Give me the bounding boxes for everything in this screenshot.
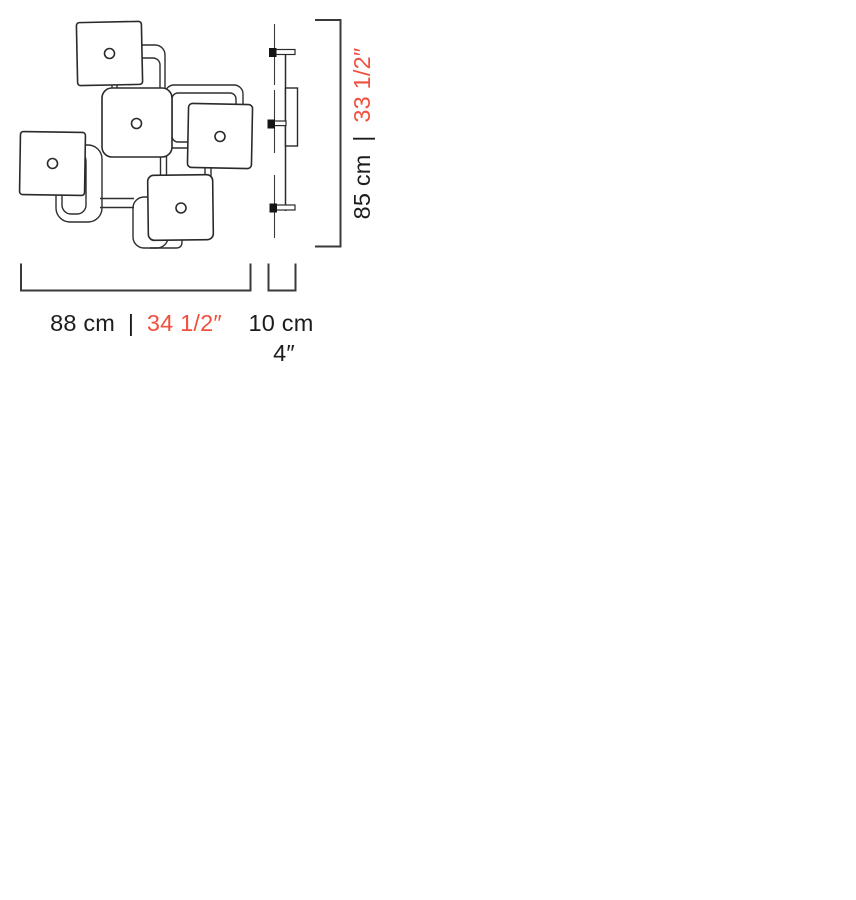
dimension-drawing-canvas: 88 cm | 34 1/2″ 10 cm 4″ 85 cm | 33 1/2″ [0, 0, 856, 900]
height-metric-value: 85 cm [349, 154, 375, 219]
dimension-drawing-page: 88 cm | 34 1/2″ 10 cm 4″ 85 cm | 33 1/2″ [0, 0, 856, 900]
shade-fixing-dot [47, 158, 57, 168]
side-view-drawing [268, 24, 298, 238]
width-dimension-bracket [21, 264, 251, 291]
wall-mount-bracket-top [269, 48, 295, 57]
depth-metric-label: 10 cm [249, 310, 314, 336]
width-metric-value: 88 cm [50, 310, 115, 336]
wall-mount-bracket-bottom [270, 204, 296, 213]
width-separator: | [128, 310, 134, 336]
shade-fixing-dot [104, 48, 114, 58]
square-shade-left [20, 131, 86, 195]
frame-bar-lower-left [100, 199, 134, 208]
depth-dimension-bracket [269, 264, 296, 291]
width-imperial-value: 34 1/2″ [147, 310, 222, 336]
wall-mount-square [269, 48, 277, 57]
wall-mount-square [270, 204, 278, 213]
wall-mount-bracket-middle [268, 120, 287, 129]
width-dimension-label: 88 cm | 34 1/2″ [50, 310, 222, 336]
shade-fixing-dot [176, 203, 186, 213]
shade-fixing-dot [215, 131, 225, 141]
height-separator: | [349, 135, 375, 141]
front-view-shades [20, 21, 253, 240]
square-shade-center [102, 88, 172, 157]
shade-fixing-dot [132, 119, 142, 129]
side-profile-body [286, 88, 298, 146]
square-shade-top [76, 21, 142, 85]
depth-imperial-label: 4″ [273, 340, 295, 366]
height-dimension-label: 85 cm | 33 1/2″ [349, 48, 375, 220]
square-shade-bottom [148, 175, 214, 241]
wall-mount-square [268, 120, 276, 129]
square-shade-right [187, 103, 252, 168]
height-dimension-bracket [315, 20, 341, 247]
height-imperial-value: 33 1/2″ [349, 48, 375, 123]
